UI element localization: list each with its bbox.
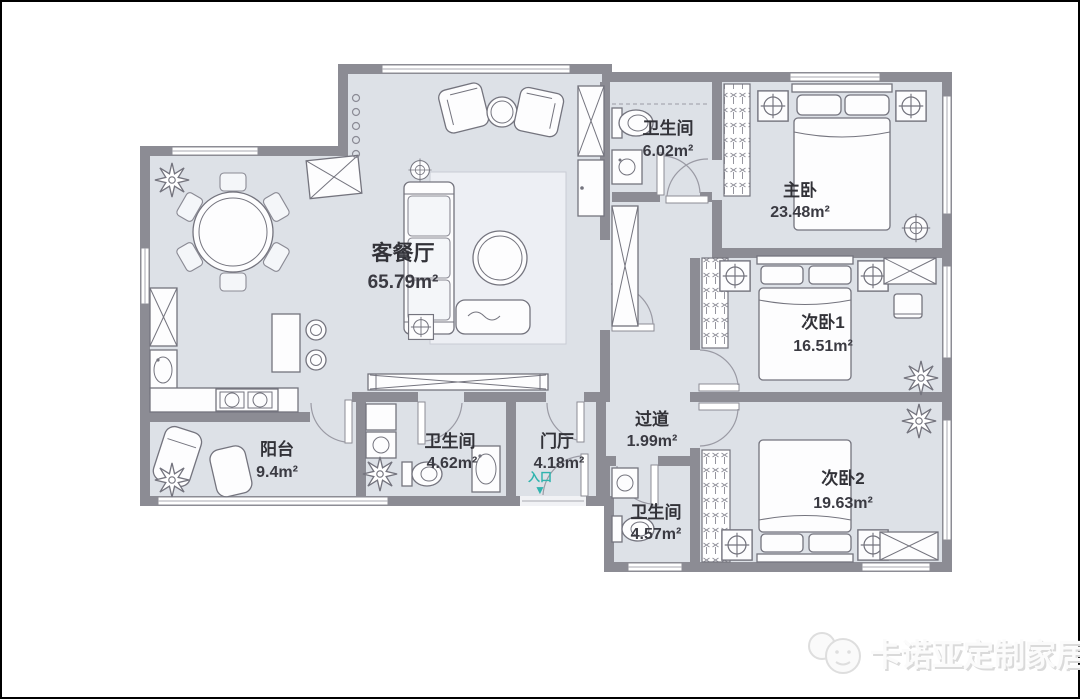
plant-bed3 xyxy=(902,404,936,438)
nightstand-lamp xyxy=(722,530,752,560)
tv-cabinet-dining xyxy=(306,155,362,198)
shelf-cabinet-tall xyxy=(578,86,604,216)
room-area-bath-left: 4.62m² xyxy=(427,455,478,472)
room-label-corridor: 过道 xyxy=(635,409,669,429)
watermark-text: 卡诺亚定制家居 xyxy=(870,638,1080,673)
window-master-top xyxy=(790,73,880,81)
room-label-bath-left: 卫生间 xyxy=(425,431,476,451)
nightstand-lamp xyxy=(720,261,750,291)
room-label-balcony: 阳台 xyxy=(260,439,294,459)
room-area-bath-mid: 4.57m² xyxy=(631,526,682,543)
plant-balcony xyxy=(155,463,189,497)
window-balcony-bottom xyxy=(158,497,388,505)
room-label-hall: 门厅 xyxy=(540,431,574,451)
kitchen-counter xyxy=(150,388,298,412)
tv-bench-bed2 xyxy=(884,258,936,284)
plant-bath-left xyxy=(363,457,397,491)
room-label-living: 客餐厅 xyxy=(372,241,435,265)
room-area-bed3: 19.63m² xyxy=(813,495,873,512)
armchair-left xyxy=(437,81,490,134)
coffee-table xyxy=(473,231,527,285)
bench xyxy=(456,300,530,334)
room-area-master: 23.48m² xyxy=(770,204,830,221)
window-bed2-right xyxy=(943,266,951,358)
room-area-bath-top: 6.02m² xyxy=(643,143,694,160)
chair-bed2 xyxy=(894,294,922,318)
room-label-bath-mid: 卫生间 xyxy=(631,502,682,522)
room-area-corridor: 1.99m² xyxy=(627,433,678,450)
armchair-right xyxy=(513,86,565,138)
sideboard xyxy=(368,374,548,390)
window-living-left xyxy=(141,248,149,304)
window-bed3-bottom xyxy=(862,563,930,571)
lamp-icon xyxy=(409,315,434,340)
window-living-top xyxy=(382,65,570,73)
window-bath-bottom xyxy=(628,563,682,571)
nightstand-lamp xyxy=(758,91,788,121)
entrance-arrow-icon: ▼ xyxy=(534,483,546,497)
room-area-bed2: 16.51m² xyxy=(793,338,853,355)
hall-wardrobe xyxy=(612,206,638,326)
room-label-bed2: 次卧1 xyxy=(801,312,844,332)
fridge-icon xyxy=(150,288,177,346)
room-label-bed3: 次卧2 xyxy=(821,468,864,488)
window-bed3-right xyxy=(943,420,951,540)
room-area-living: 65.79m² xyxy=(368,272,439,293)
floorplan-page: 客餐厅 65.79m² 卫生间 6.02m² 主卧 23.48m² 次卧1 16… xyxy=(0,0,1080,699)
room-label-bath-top: 卫生间 xyxy=(643,118,694,138)
plant-dining xyxy=(155,163,189,197)
cabinet-bed3 xyxy=(880,532,938,560)
window-master-right xyxy=(943,96,951,214)
nightstand-lamp xyxy=(896,91,926,121)
floorplan-drawing: 客餐厅 65.79m² 卫生间 6.02m² 主卧 23.48m² 次卧1 16… xyxy=(0,0,1080,699)
watermark: 卡诺亚定制家居 卡诺亚定制家居 xyxy=(809,633,1080,675)
room-label-master: 主卧 xyxy=(783,180,817,200)
wardrobe-master xyxy=(724,84,750,196)
window-dining-top xyxy=(172,147,258,155)
plant-bed2 xyxy=(904,361,938,395)
entrance-label: 入口 xyxy=(528,470,552,484)
room-area-balcony: 9.4m² xyxy=(256,464,298,481)
